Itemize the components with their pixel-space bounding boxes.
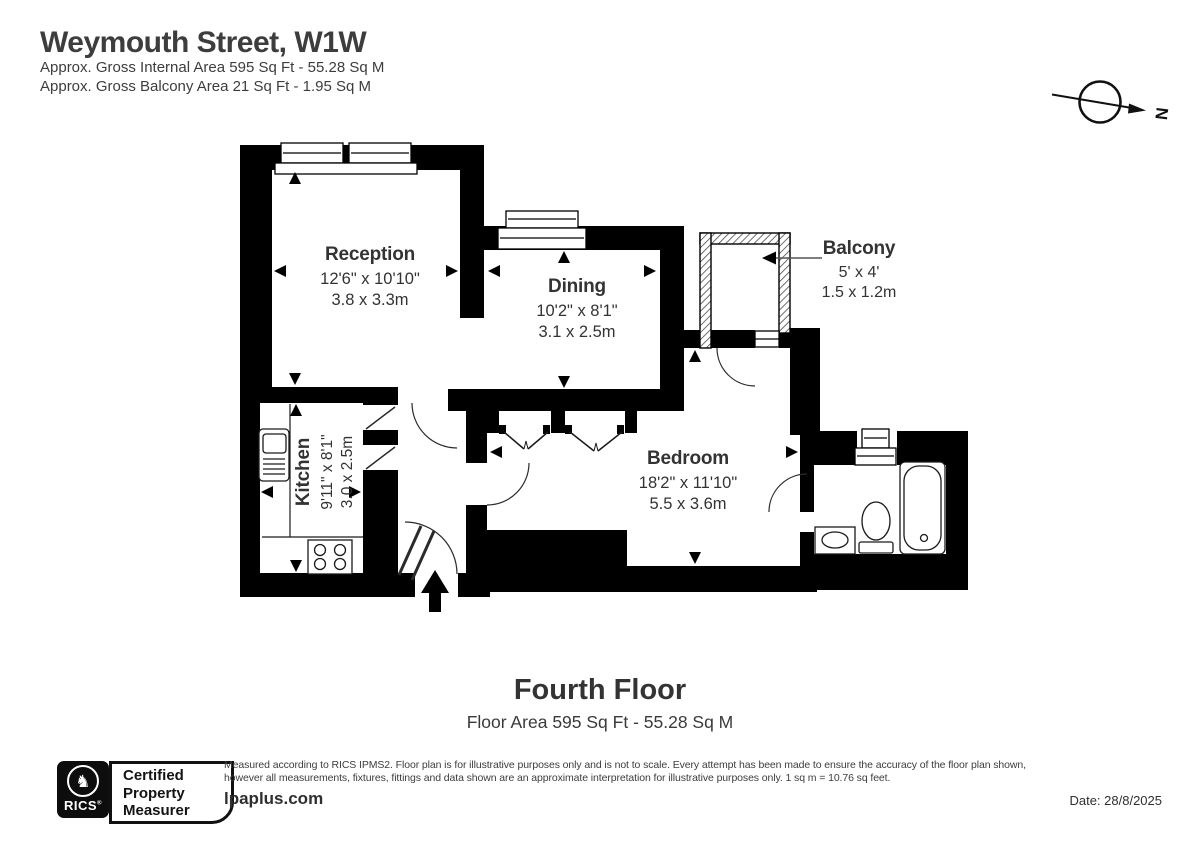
kitchen-name: Kitchen: [293, 397, 315, 547]
balcony-metric: 1.5 x 1.2m: [798, 283, 920, 303]
bedroom-imperial: 18'2" x 11'10": [588, 473, 788, 494]
entry-arrow: [421, 570, 449, 612]
balcony-name: Balcony: [798, 238, 920, 260]
basin-icon: [815, 527, 855, 554]
badge-line-1: Certified: [123, 767, 231, 785]
disclaimer-line-1: Measured according to RICS IPMS2. Floor …: [224, 759, 1174, 772]
reception-metric: 3.8 x 3.3m: [268, 290, 472, 311]
header: Weymouth Street, W1W Approx. Gross Inter…: [40, 26, 384, 97]
disclaimer: Measured according to RICS IPMS2. Floor …: [224, 759, 1174, 785]
compass-icon: N: [1052, 82, 1172, 123]
bedroom-name: Bedroom: [588, 448, 788, 470]
dining-name: Dining: [477, 276, 677, 298]
rics-lion-icon: ♞: [67, 765, 99, 797]
balcony-label: Balcony 5' x 4' 1.5 x 1.2m: [798, 238, 920, 304]
dining-imperial: 10'2" x 8'1": [477, 301, 677, 322]
kitchen-metric: 3.0 x 2.5m: [338, 397, 358, 547]
date-label: Date: 28/8/2025: [1069, 793, 1162, 808]
page-title: Weymouth Street, W1W: [40, 26, 384, 59]
disclaimer-line-2: however all measurements, fixtures, fitt…: [224, 772, 1174, 785]
sink-icon: [259, 429, 289, 481]
bedroom-metric: 5.5 x 3.6m: [588, 494, 788, 515]
reception-imperial: 12'6" x 10'10": [268, 269, 472, 290]
bathtub-icon: [900, 462, 945, 554]
toilet-icon: [859, 502, 893, 553]
internal-area-subtitle: Approx. Gross Internal Area 595 Sq Ft - …: [40, 59, 384, 78]
rics-logo: ♞ RICS®: [57, 761, 109, 818]
dining-label: Dining 10'2" x 8'1" 3.1 x 2.5m: [477, 276, 677, 343]
bedroom-label: Bedroom 18'2" x 11'10" 5.5 x 3.6m: [588, 448, 788, 515]
floor-area: Floor Area 595 Sq Ft - 55.28 Sq M: [0, 712, 1200, 733]
rics-label: RICS: [64, 798, 97, 813]
dining-metric: 3.1 x 2.5m: [477, 322, 677, 343]
kitchen-imperial: 9'11" x 8'1": [318, 397, 338, 547]
website-link[interactable]: lpaplus.com: [224, 789, 323, 809]
balcony-imperial: 5' x 4': [798, 263, 920, 283]
kitchen-label: Kitchen 9'11" x 8'1" 3.0 x 2.5m: [289, 397, 361, 547]
reception-label: Reception 12'6" x 10'10" 3.8 x 3.3m: [268, 244, 472, 311]
compass-north-label: N: [1151, 106, 1171, 121]
balcony-area-subtitle: Approx. Gross Balcony Area 21 Sq Ft - 1.…: [40, 78, 384, 97]
registered-mark: ®: [97, 801, 102, 807]
floor-title: Fourth Floor: [0, 674, 1200, 707]
reception-name: Reception: [268, 244, 472, 266]
badge-line-2: Property: [123, 785, 231, 803]
badge-line-3: Measurer: [123, 802, 231, 820]
certified-property-measurer-badge: Certified Property Measurer: [109, 761, 234, 824]
